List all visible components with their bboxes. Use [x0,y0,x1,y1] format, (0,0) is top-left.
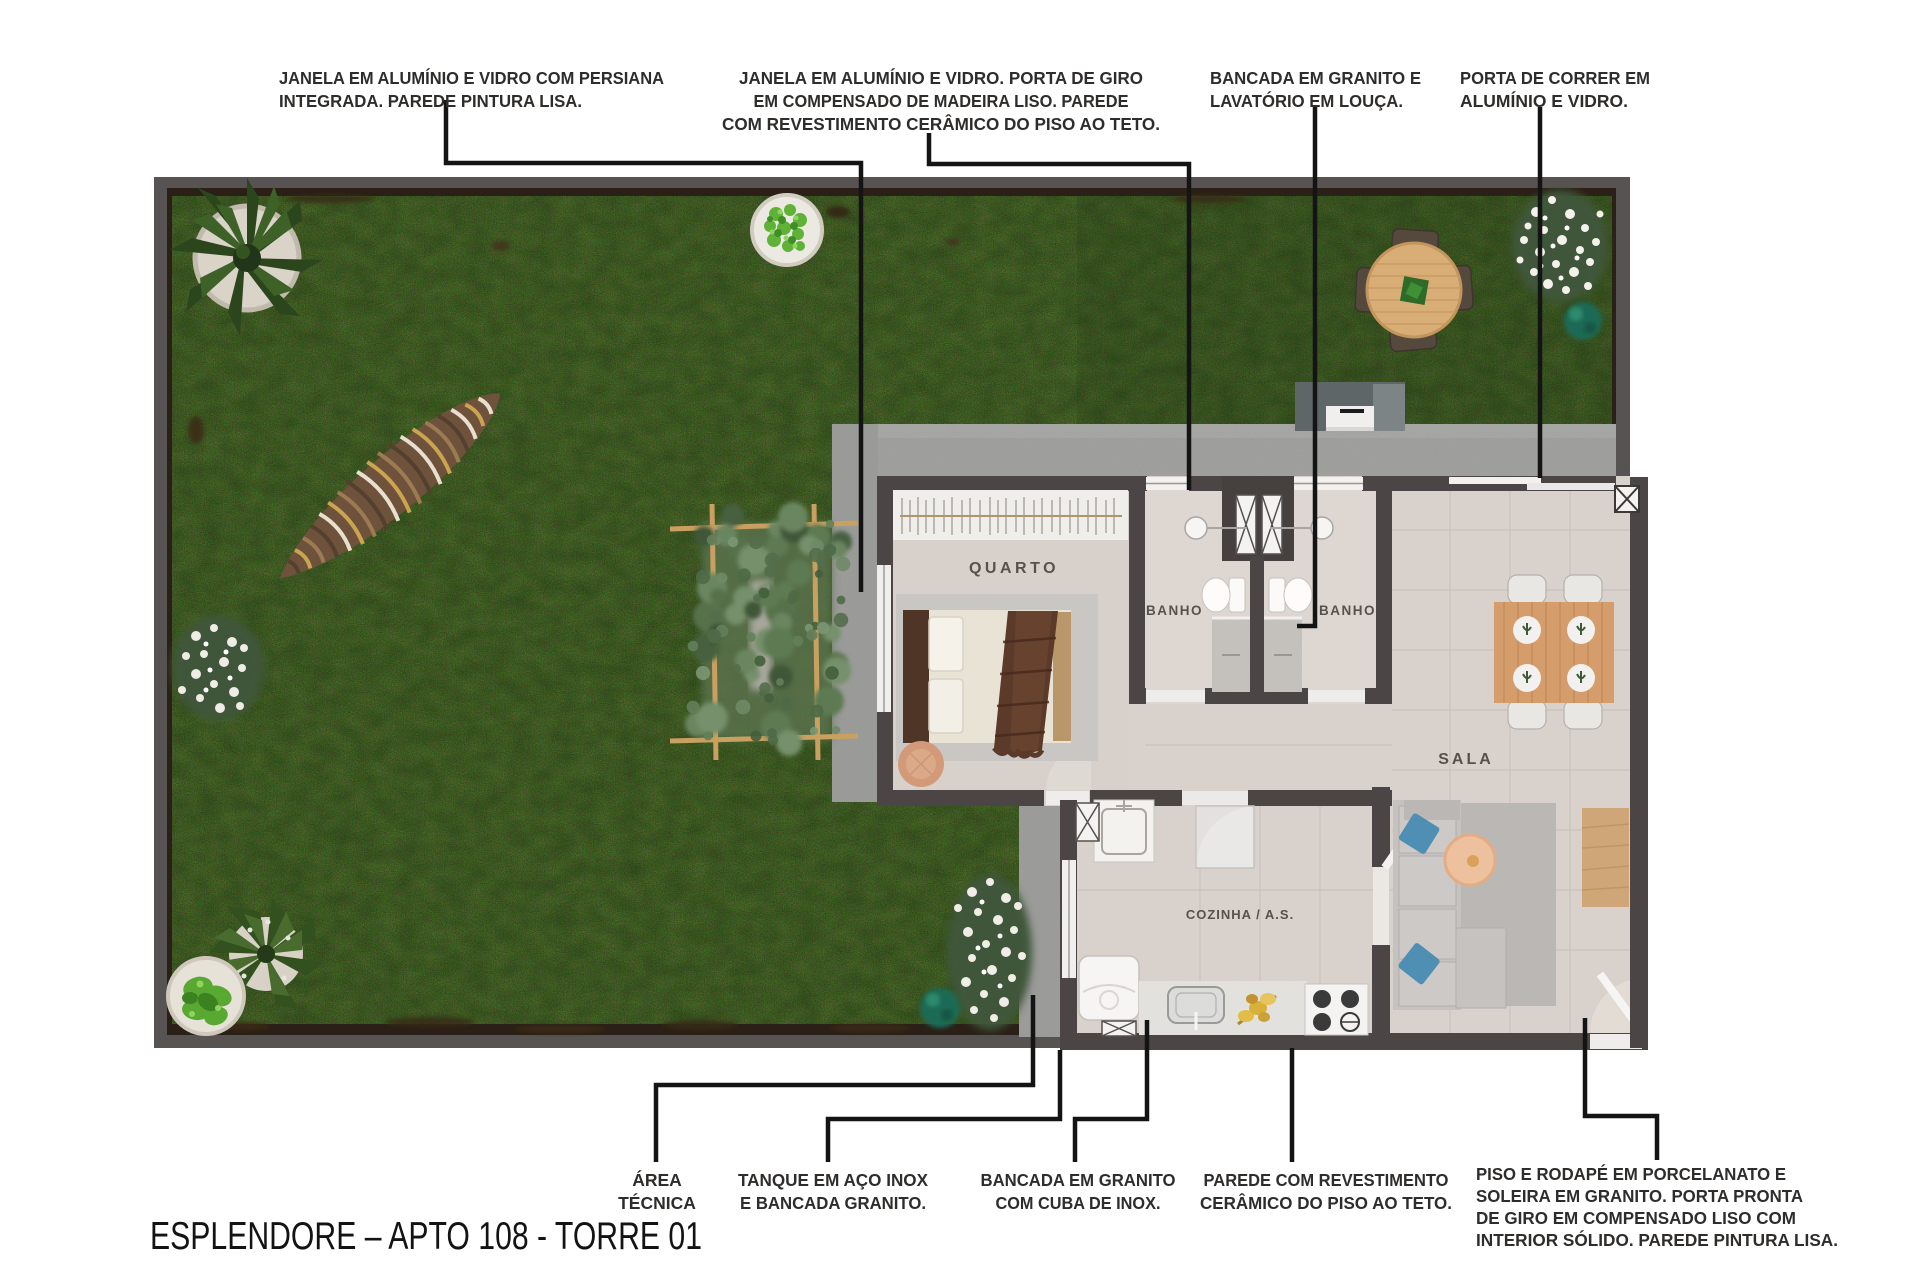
svg-text:COM CUBA DE INOX.: COM CUBA DE INOX. [996,1193,1161,1213]
svg-text:BANCADA EM GRANITO E: BANCADA EM GRANITO E [1210,68,1421,88]
svg-text:JANELA EM ALUMÍNIO E VIDRO COM: JANELA EM ALUMÍNIO E VIDRO COM PERSIANA [279,67,664,88]
svg-text:CERÂMICO DO PISO AO TETO.: CERÂMICO DO PISO AO TETO. [1200,1192,1452,1213]
svg-text:JANELA EM ALUMÍNIO E VIDRO. PO: JANELA EM ALUMÍNIO E VIDRO. PORTA DE GIR… [739,67,1143,88]
svg-text:PAREDE COM REVESTIMENTO: PAREDE COM REVESTIMENTO [1204,1170,1449,1190]
svg-text:SALA: SALA [1438,751,1494,768]
svg-text:PORTA DE CORRER EM: PORTA DE CORRER EM [1460,68,1650,88]
svg-text:EM COMPENSADO DE MADEIRA LISO.: EM COMPENSADO DE MADEIRA LISO. PAREDE [754,91,1129,111]
svg-text:LAVATÓRIO EM LOUÇA.: LAVATÓRIO EM LOUÇA. [1210,90,1403,111]
svg-text:TANQUE EM AÇO INOX: TANQUE EM AÇO INOX [738,1170,928,1190]
svg-text:BANCADA EM GRANITO: BANCADA EM GRANITO [981,1170,1176,1190]
svg-text:INTEGRADA. PAREDE PINTURA LISA: INTEGRADA. PAREDE PINTURA LISA. [279,91,582,111]
svg-text:COM REVESTIMENTO CERÂMICO DO P: COM REVESTIMENTO CERÂMICO DO PISO AO TET… [722,113,1160,134]
svg-text:DE GIRO EM COMPENSADO LISO COM: DE GIRO EM COMPENSADO LISO COM [1476,1208,1796,1228]
svg-text:ÁREA: ÁREA [632,1169,682,1190]
svg-text:ALUMÍNIO E VIDRO.: ALUMÍNIO E VIDRO. [1460,90,1628,111]
svg-text:ESPLENDORE – APTO 108 - TORRE: ESPLENDORE – APTO 108 - TORRE 01 [150,1215,702,1258]
svg-text:E BANCADA GRANITO.: E BANCADA GRANITO. [740,1193,926,1213]
svg-text:INTERIOR SÓLIDO. PAREDE PINTUR: INTERIOR SÓLIDO. PAREDE PINTURA LISA. [1476,1229,1838,1250]
svg-text:PISO E RODAPÉ EM PORCELANATO E: PISO E RODAPÉ EM PORCELANATO E [1476,1163,1786,1184]
svg-text:BANHO: BANHO [1146,603,1203,618]
svg-text:BANHO: BANHO [1319,603,1376,618]
svg-text:TÉCNICA: TÉCNICA [618,1192,696,1213]
svg-text:SOLEIRA EM GRANITO. PORTA PRON: SOLEIRA EM GRANITO. PORTA PRONTA [1476,1186,1803,1206]
svg-text:COZINHA / A.S.: COZINHA / A.S. [1186,907,1294,922]
svg-text:QUARTO: QUARTO [969,560,1059,577]
